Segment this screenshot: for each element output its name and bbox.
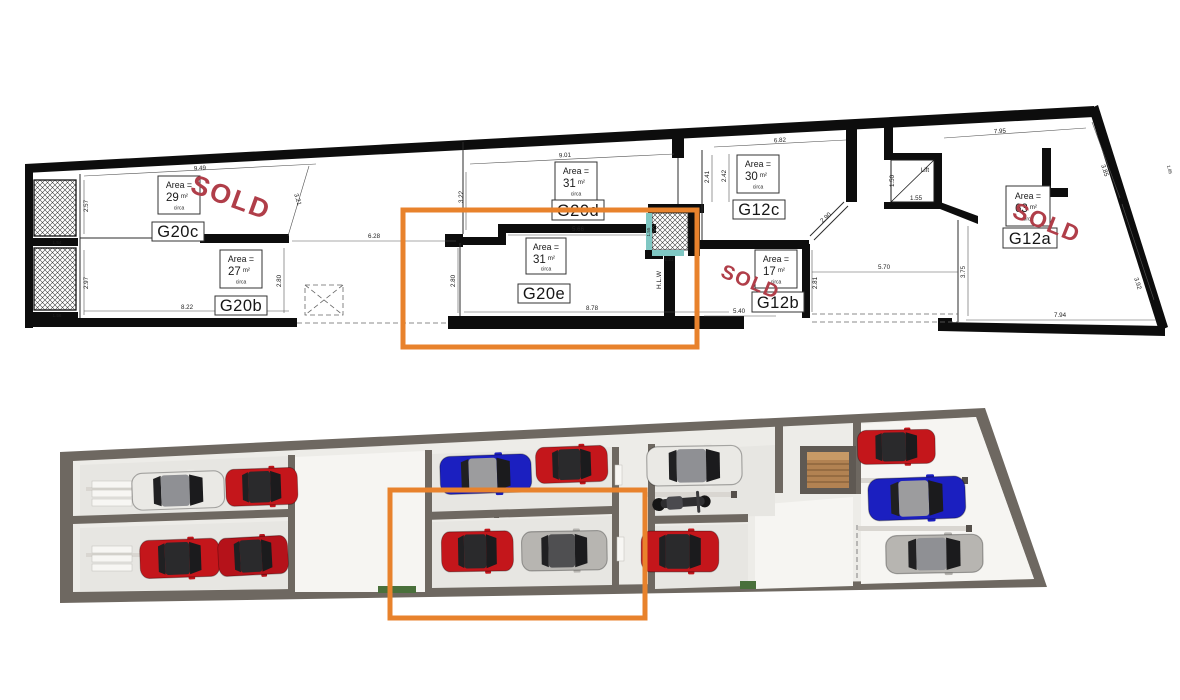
dim-g12a-top: 7.95 xyxy=(994,128,1007,136)
dim-g20b-right: 2.80 xyxy=(276,274,283,287)
dim-hlw-w: 1.21 xyxy=(665,257,674,262)
car-red-g12a xyxy=(857,427,935,467)
car-silver-g20e xyxy=(521,528,607,574)
car-white-g12c xyxy=(646,443,742,489)
dim-hlw-h: 1.55 xyxy=(646,227,651,236)
dim-lift-w: 1.55 xyxy=(910,195,923,202)
svg-text:circa: circa xyxy=(571,192,582,198)
dimension-lines xyxy=(84,122,1156,320)
dim-court-w: 5.70 xyxy=(878,264,891,271)
dim-g20d-top: 9.01 xyxy=(559,152,572,160)
room-label-g12c: G12c xyxy=(733,200,785,219)
car-red-g20d xyxy=(535,443,608,486)
area-box-g20d: Area = 31m² circa xyxy=(555,162,597,200)
dim-g20b-left: 2.97 xyxy=(83,276,90,289)
hlw-teal-bottom xyxy=(652,250,684,256)
room-label-g20e: G20e xyxy=(518,284,570,303)
svg-text:circa: circa xyxy=(753,185,764,191)
dim-g12a-bottom: 7.94 xyxy=(1054,312,1067,319)
svg-text:circa: circa xyxy=(236,280,247,286)
brochure-graphic: 1.55 1.21 H.L.W Lift 1.50 1.55 Area = 29… xyxy=(0,0,1180,700)
dim-shaft2-w: 1.56 xyxy=(53,313,62,318)
stair-shaft-hatch-lower xyxy=(34,248,76,310)
car-silver-g12a xyxy=(886,532,984,576)
render-3d xyxy=(60,408,1047,603)
dim-g20c-top: 9.49 xyxy=(194,165,207,173)
car-red-g20b-2 xyxy=(217,533,289,579)
svg-text:Area =: Area = xyxy=(563,166,589,176)
dim-g20e-bottom: 8.78 xyxy=(586,305,599,312)
car-red-g12b xyxy=(641,529,719,575)
car-red-g20e xyxy=(441,528,514,574)
room-label-g20c: G20c xyxy=(152,222,204,241)
floor-plan: 1.55 1.21 H.L.W Lift 1.50 1.55 Area = 29… xyxy=(25,105,1173,336)
dim-g20e-top: 5.66 xyxy=(572,226,585,233)
dim-g12c-top: 6.82 xyxy=(774,137,787,145)
dim-g12a-edge: 1.85 xyxy=(1166,165,1173,175)
dim-g12b-right: 2.81 xyxy=(812,276,819,289)
ramp-area xyxy=(295,451,425,592)
staircase xyxy=(800,446,856,494)
area-box-g12c: Area = 30m² circa xyxy=(737,155,779,193)
svg-text:Area =: Area = xyxy=(745,159,771,169)
sold-stamp-g20c: SOLD xyxy=(187,169,275,226)
room-label-g20b: G20b xyxy=(215,296,267,315)
svg-text:G12c: G12c xyxy=(738,201,779,219)
dim-g20d-r2: 2.42 xyxy=(721,169,728,182)
car-white-g20c xyxy=(131,468,225,513)
dim-g20c-left: 2.57 xyxy=(83,199,90,212)
dim-shaft1-w: 1.54 xyxy=(53,240,62,245)
area-box-g20b: Area = 27m² circa xyxy=(220,250,262,288)
dim-g12b-bottom: 5.40 xyxy=(733,308,746,315)
lift: Lift 1.50 1.55 xyxy=(889,160,934,202)
svg-text:Area =: Area = xyxy=(166,180,192,190)
stair-shaft-hatch-upper xyxy=(34,180,76,236)
dim-g20d-r1: 2.41 xyxy=(704,170,711,183)
dim-g12a-left: 3.75 xyxy=(960,265,967,278)
dim-g12a-r2: 3.92 xyxy=(1132,277,1143,291)
svg-text:G20e: G20e xyxy=(523,285,565,303)
dim-g20d-left: 3.22 xyxy=(458,190,465,203)
dim-g20b-bottom: 8.22 xyxy=(181,304,194,311)
dim-g20c-diag: 3.21 xyxy=(292,193,303,207)
dim-g20e-left: 2.80 xyxy=(450,274,457,287)
car-red-g20c xyxy=(225,465,298,509)
svg-text:Area =: Area = xyxy=(763,254,789,264)
svg-text:G20b: G20b xyxy=(220,297,262,315)
car-blue-g12a xyxy=(868,473,967,524)
svg-text:Area =: Area = xyxy=(533,242,559,252)
svg-text:circa: circa xyxy=(541,267,552,273)
car-red-g20b-1 xyxy=(139,536,220,581)
svg-text:Area =: Area = xyxy=(228,254,254,264)
dim-drive-top: 6.28 xyxy=(368,233,381,240)
svg-text:G20c: G20c xyxy=(157,223,198,241)
dim-lift-h: 1.50 xyxy=(889,174,896,187)
svg-text:circa: circa xyxy=(174,206,185,212)
hlw-label: H.L.W xyxy=(656,270,663,289)
area-box-g20e: Area = 31m² circa xyxy=(526,238,566,274)
lift-label: Lift xyxy=(921,167,930,174)
garage-sale-brochure: 1.55 1.21 H.L.W Lift 1.50 1.55 Area = 29… xyxy=(0,0,1180,700)
